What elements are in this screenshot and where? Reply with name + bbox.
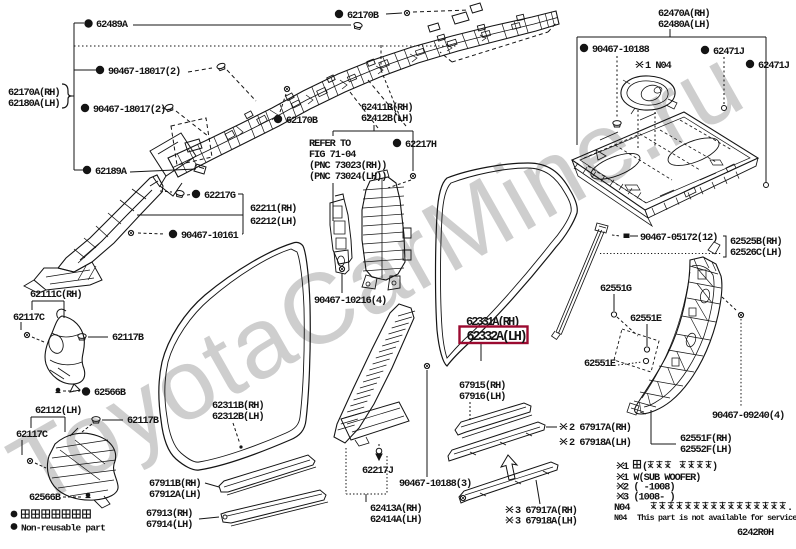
svg-text:1 N04: 1 N04 [645, 61, 672, 72]
svg-text:90467-10216(4): 90467-10216(4) [314, 295, 386, 307]
svg-text:62471J: 62471J [713, 47, 745, 58]
svg-text:62117C: 62117C [13, 313, 45, 324]
svg-text:62170A(RH): 62170A(RH) [8, 87, 60, 99]
svg-text:67914(LH): 67914(LH) [146, 519, 192, 531]
svg-text:90467-10188(3): 90467-10188(3) [399, 478, 471, 490]
svg-text:62112(LH): 62112(LH) [35, 405, 81, 417]
svg-text:62170B: 62170B [286, 116, 318, 127]
svg-text:62189A: 62189A [95, 167, 128, 178]
svg-text:90467-18017(2): 90467-18017(2) [93, 104, 165, 116]
svg-text:62414A(LH): 62414A(LH) [370, 514, 422, 526]
svg-text:67915(RH): 67915(RH) [459, 380, 505, 392]
svg-text:1: 1 [623, 462, 629, 473]
svg-text:62180A(LH): 62180A(LH) [8, 98, 60, 110]
svg-text:3 67918A(LH): 3 67918A(LH) [515, 516, 577, 528]
svg-text:FIG 71-04: FIG 71-04 [309, 150, 356, 161]
svg-text:90467-09240(4): 90467-09240(4) [712, 410, 784, 422]
svg-text:62311B(RH): 62311B(RH) [212, 400, 264, 412]
svg-text:This part is not available for: This part is not available for service [637, 513, 796, 523]
svg-text:REFER TO: REFER TO [309, 139, 351, 150]
svg-text:62551E: 62551E [584, 359, 616, 370]
svg-text:62551F(RH): 62551F(RH) [680, 433, 732, 445]
svg-text:62312B(LH): 62312B(LH) [212, 411, 264, 423]
svg-text:62211(RH): 62211(RH) [250, 203, 296, 215]
svg-text:62470A(RH): 62470A(RH) [658, 8, 710, 20]
svg-text:3 (1008- ): 3 (1008- ) [623, 492, 675, 504]
svg-text:N04: N04 [614, 503, 630, 514]
svg-text:6242R0H: 6242R0H [737, 528, 774, 539]
svg-text:Non-reusable part: Non-reusable part [21, 523, 105, 534]
svg-text:90467-18017(2): 90467-18017(2) [108, 66, 180, 78]
svg-text:67913(RH): 67913(RH) [146, 508, 192, 520]
svg-text:62551E: 62551E [630, 314, 662, 325]
svg-text:(PNC 73023(RH)): (PNC 73023(RH)) [309, 160, 386, 172]
svg-text:62489A: 62489A [96, 20, 129, 31]
svg-text:62525B(RH): 62525B(RH) [730, 236, 782, 248]
svg-text:62332A(LH): 62332A(LH) [467, 330, 526, 345]
svg-text:62212(LH): 62212(LH) [250, 216, 296, 228]
svg-text:62413A(RH): 62413A(RH) [370, 503, 422, 515]
svg-text:62217G: 62217G [204, 191, 236, 202]
svg-text:62566B: 62566B [94, 388, 126, 399]
svg-text:62566B: 62566B [29, 493, 61, 504]
svg-text:2 67917A(RH): 2 67917A(RH) [569, 422, 631, 434]
svg-text:62217J: 62217J [362, 466, 394, 477]
svg-text:62551G: 62551G [600, 284, 632, 295]
svg-text:3 67917A(RH): 3 67917A(RH) [515, 505, 577, 517]
svg-text:(: ( [642, 461, 647, 473]
svg-text:62117C: 62117C [16, 430, 48, 441]
svg-text:90467-10188: 90467-10188 [592, 45, 650, 56]
svg-text:62170B: 62170B [347, 11, 379, 22]
svg-text:62217H: 62217H [405, 140, 437, 151]
svg-text:): ) [712, 461, 717, 473]
svg-text:62411B(RH): 62411B(RH) [361, 102, 413, 114]
svg-text:62117B: 62117B [112, 333, 144, 344]
svg-text:90467-05172(12): 90467-05172(12) [640, 232, 717, 244]
svg-text:67912A(LH): 67912A(LH) [149, 489, 201, 501]
svg-text:62480A(LH): 62480A(LH) [658, 19, 710, 31]
svg-text:62526C(LH): 62526C(LH) [730, 247, 782, 259]
svg-text:62117B: 62117B [127, 416, 159, 427]
svg-text:62552F(LH): 62552F(LH) [680, 444, 732, 456]
svg-text:N04: N04 [614, 514, 627, 523]
svg-text:62111C(RH): 62111C(RH) [30, 289, 82, 301]
svg-text:62471J: 62471J [758, 61, 790, 72]
svg-text:67916(LH): 67916(LH) [459, 391, 505, 403]
svg-text:67911B(RH): 67911B(RH) [149, 478, 201, 490]
svg-text:2 67918A(LH): 2 67918A(LH) [569, 437, 631, 449]
svg-text:.: . [787, 503, 792, 514]
svg-text:62412B(LH): 62412B(LH) [361, 113, 413, 125]
svg-text:90467-10161: 90467-10161 [181, 231, 239, 242]
